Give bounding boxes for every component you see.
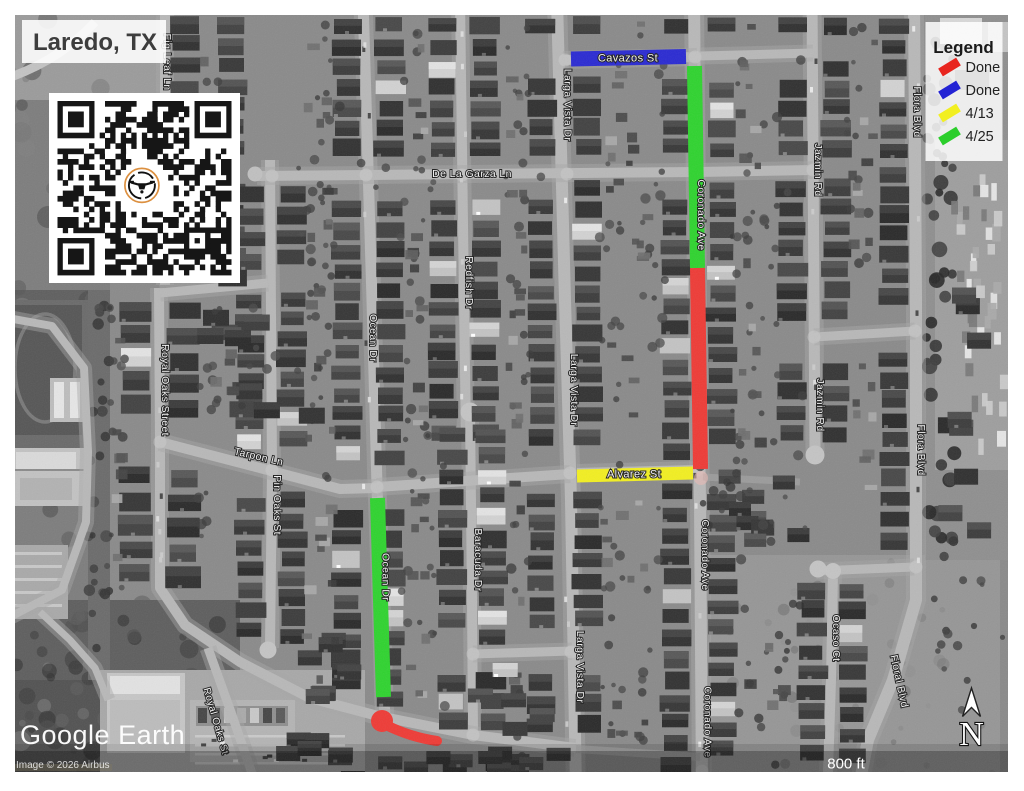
svg-text:Image © 2026 Airbus: Image © 2026 Airbus (16, 760, 110, 771)
svg-text:4/25: 4/25 (966, 129, 994, 145)
svg-text:Legend: Legend (933, 38, 993, 57)
svg-text:N: N (959, 716, 984, 753)
svg-text:Done: Done (966, 83, 1001, 99)
svg-text:4/13: 4/13 (966, 106, 994, 122)
svg-text:Google Earth: Google Earth (20, 720, 185, 750)
svg-text:800 ft: 800 ft (827, 756, 865, 773)
svg-text:Done: Done (966, 60, 1001, 76)
